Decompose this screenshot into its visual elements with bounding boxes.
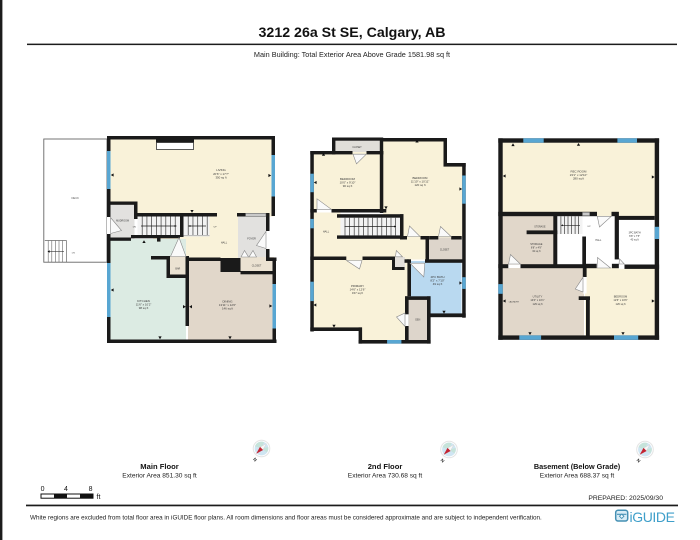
svg-text:Exterior Area 851.30 sq ft: Exterior Area 851.30 sq ft	[122, 472, 197, 479]
svg-text:126 sq ft: 126 sq ft	[616, 302, 626, 306]
svg-text:CLOSET: CLOSET	[440, 250, 450, 252]
svg-text:HALL: HALL	[323, 231, 330, 234]
svg-text:129 sq ft: 129 sq ft	[533, 302, 543, 306]
svg-text:UP: UP	[588, 226, 592, 228]
svg-text:Basement (Below Grade): Basement (Below Grade)	[534, 462, 621, 471]
svg-text:UTILITY: UTILITY	[533, 295, 543, 299]
svg-text:BEDROOM: BEDROOM	[614, 295, 627, 299]
svg-text:8: 8	[89, 486, 93, 493]
svg-text:CLOSET: CLOSET	[352, 147, 362, 149]
svg-text:2nd Floor: 2nd Floor	[368, 462, 403, 471]
svg-text:90 sq ft: 90 sq ft	[343, 184, 353, 188]
svg-text:120 sq ft: 120 sq ft	[414, 183, 425, 187]
svg-text:White regions are excluded fro: White regions are excluded from total fl…	[30, 514, 542, 521]
svg-text:157 sq ft: 157 sq ft	[352, 291, 363, 295]
svg-text:14'0" x 10'1": 14'0" x 10'1"	[530, 298, 544, 302]
svg-text:Exterior Area 730.68 sq ft: Exterior Area 730.68 sq ft	[348, 472, 423, 479]
svg-text:MUDROOM: MUDROOM	[116, 220, 129, 223]
svg-text:350 sq ft: 350 sq ft	[215, 175, 226, 179]
svg-text:CLOSET: CLOSET	[252, 265, 262, 268]
svg-text:32 sq ft: 32 sq ft	[532, 250, 541, 253]
svg-text:Main Building: Total Exterior: Main Building: Total Exterior Area Above…	[254, 50, 450, 59]
svg-text:6'8" x 7'5": 6'8" x 7'5"	[629, 235, 640, 238]
svg-text:PREPARED: 2025/09/30: PREPARED: 2025/09/30	[588, 495, 663, 502]
svg-text:FOYER: FOYER	[247, 238, 256, 241]
svg-text:6'8" x 4'9": 6'8" x 4'9"	[531, 246, 542, 249]
svg-text:12'6" x 10'6": 12'6" x 10'6"	[613, 298, 627, 302]
svg-text:98 sq ft: 98 sq ft	[139, 306, 149, 310]
svg-text:3PC BATH: 3PC BATH	[629, 231, 641, 234]
svg-text:UP: UP	[214, 226, 218, 228]
svg-text:146 sq ft: 146 sq ft	[222, 307, 233, 311]
svg-text:DECK: DECK	[71, 196, 79, 200]
svg-text:DN: DN	[133, 226, 137, 228]
svg-text:Exterior Area 688.37 sq ft: Exterior Area 688.37 sq ft	[540, 472, 615, 479]
svg-text:4: 4	[64, 486, 68, 493]
svg-text:ft: ft	[97, 494, 101, 501]
svg-text:DN: DN	[72, 252, 76, 254]
svg-text:HALL: HALL	[221, 242, 228, 245]
svg-text:Main Floor: Main Floor	[140, 462, 178, 471]
svg-text:3212 26a St SE, Calgary, AB: 3212 26a St SE, Calgary, AB	[259, 25, 446, 41]
svg-text:280 sq ft: 280 sq ft	[573, 177, 584, 181]
svg-text:HALL: HALL	[595, 239, 602, 242]
svg-text:49 sq ft: 49 sq ft	[433, 282, 443, 286]
svg-text:0: 0	[41, 486, 45, 493]
svg-text:DEN: DEN	[415, 320, 420, 322]
svg-text:STORAGE: STORAGE	[530, 243, 543, 246]
svg-text:BAR: BAR	[175, 268, 180, 271]
svg-text:43 sq ft: 43 sq ft	[630, 239, 639, 242]
svg-text:iGUIDE: iGUIDE	[630, 509, 675, 525]
